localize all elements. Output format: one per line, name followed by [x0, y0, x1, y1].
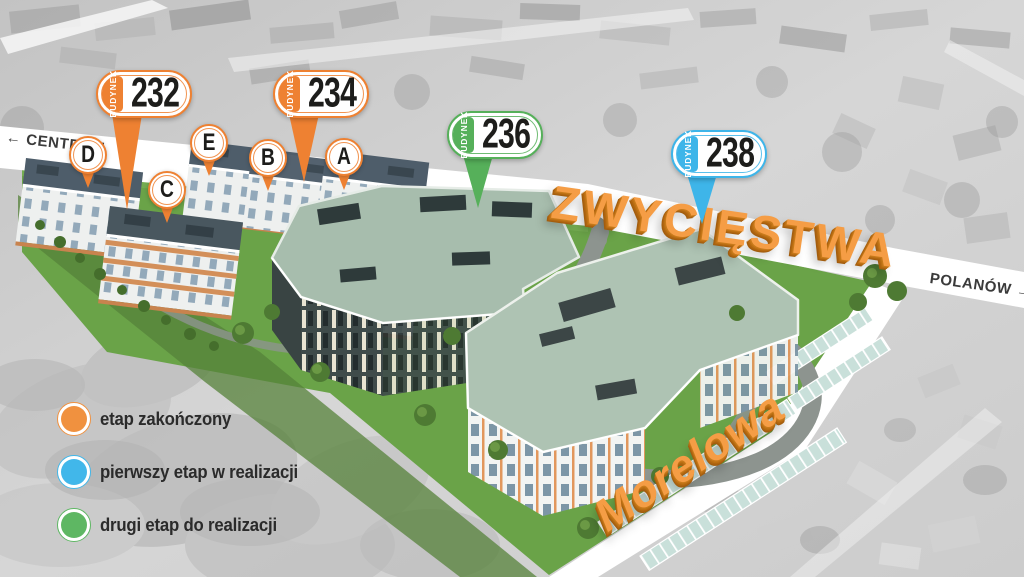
legend: etap zakończony pierwszy etap w realizac… [57, 402, 313, 561]
legend-dot-blue [57, 455, 91, 489]
marker-pointer [463, 155, 493, 208]
site-plan-canvas: ZWYCIĘSTWA Morelowa ← CENTRUM POLANÓW → … [0, 0, 1024, 577]
marker-budynek-238[interactable]: BUDYNEK 238 [671, 130, 767, 276]
legend-dot-orange [57, 402, 91, 436]
legend-label: etap zakończony [100, 409, 231, 430]
legend-item-completed: etap zakończony [57, 402, 313, 436]
building-number: 234 [308, 72, 354, 114]
building-label-e[interactable]: E [190, 124, 228, 182]
marker-budynek-236[interactable]: BUDYNEK 236 [447, 111, 543, 257]
building-number: 238 [706, 132, 752, 174]
marker-pointer [289, 114, 319, 182]
right-arrow-icon: → [1015, 282, 1024, 301]
legend-item-planned: drugi etap do realizacji [57, 508, 313, 542]
building-number: 232 [131, 72, 177, 114]
building-label-c[interactable]: C [148, 171, 186, 229]
marker-pointer [112, 114, 142, 210]
legend-label: pierwszy etap w realizacji [100, 462, 298, 483]
legend-item-in-progress: pierwszy etap w realizacji [57, 455, 313, 489]
building-number: 236 [482, 113, 528, 155]
left-arrow-icon: ← [5, 129, 22, 148]
marker-pointer [687, 174, 717, 224]
legend-dot-green [57, 508, 91, 542]
building-label-a[interactable]: A [325, 138, 363, 196]
building-label-b[interactable]: B [249, 139, 287, 197]
building-label-d[interactable]: D [69, 136, 107, 194]
legend-label: drugi etap do realizacji [100, 515, 277, 536]
